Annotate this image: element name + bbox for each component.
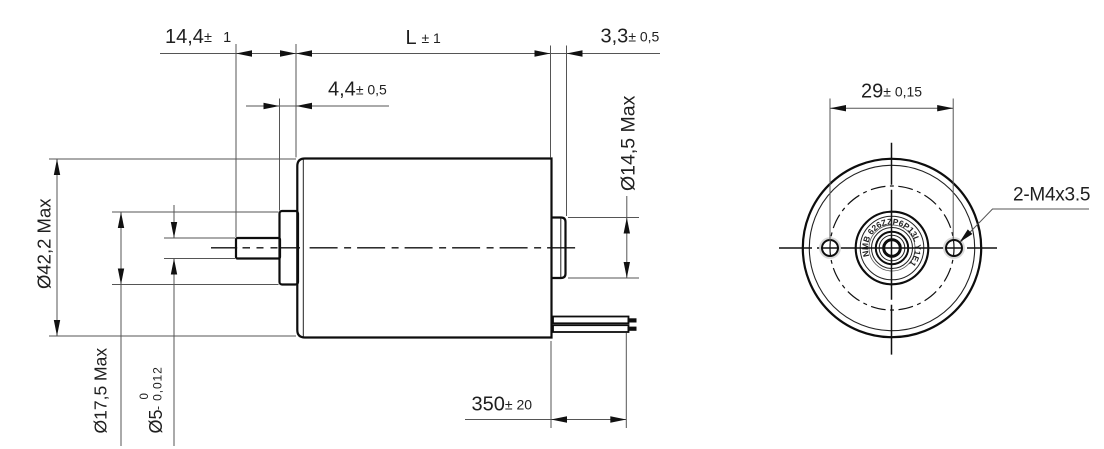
svg-text:2-M4x3.5: 2-M4x3.5 bbox=[1013, 185, 1090, 206]
svg-text:Ø5: Ø5 bbox=[146, 409, 166, 433]
svg-text:14,4± 1: 14,4± 1 bbox=[165, 26, 231, 48]
svg-text:4,4± 0,5: 4,4± 0,5 bbox=[328, 79, 387, 101]
svg-text:0: 0 bbox=[139, 393, 151, 399]
svg-text:- 0,012: - 0,012 bbox=[151, 366, 165, 410]
svg-text:L ± 1: L ± 1 bbox=[406, 27, 442, 49]
svg-text:Ø17,5 Max: Ø17,5 Max bbox=[91, 348, 111, 434]
svg-text:Ø14,5 Max: Ø14,5 Max bbox=[618, 95, 640, 191]
svg-text:29± 0,15: 29± 0,15 bbox=[861, 81, 922, 103]
svg-text:Ø42,2 Max: Ø42,2 Max bbox=[34, 198, 55, 289]
svg-text:3,3± 0,5: 3,3± 0,5 bbox=[601, 26, 660, 48]
svg-text:350± 20: 350± 20 bbox=[472, 394, 533, 416]
